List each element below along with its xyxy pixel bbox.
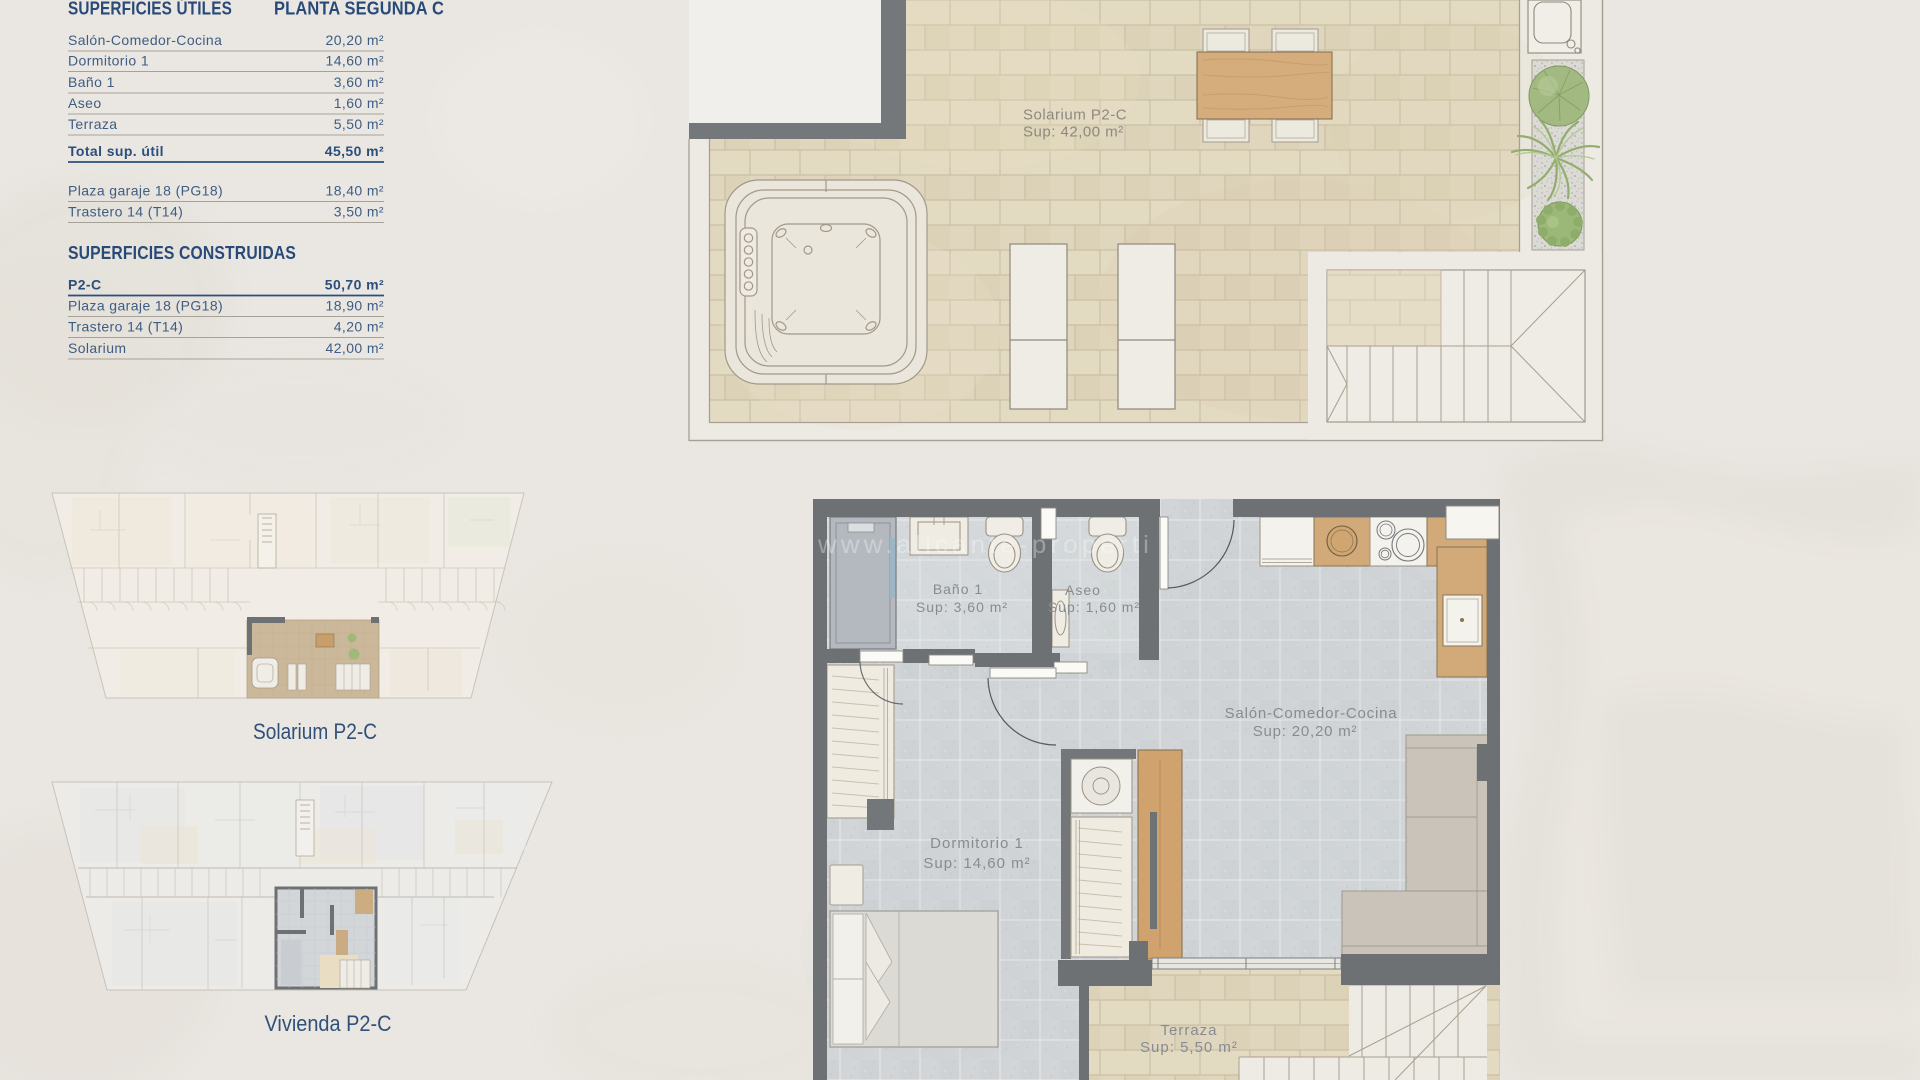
- svg-text:Plaza garaje 18 (PG18): Plaza garaje 18 (PG18): [68, 298, 223, 314]
- svg-text:Terraza: Terraza: [1160, 1022, 1217, 1039]
- svg-text:Baño 1: Baño 1: [933, 581, 983, 597]
- svg-text:1,60 m²: 1,60 m²: [334, 95, 384, 111]
- svg-text:Sup: 3,60 m²: Sup: 3,60 m²: [916, 599, 1008, 615]
- svg-text:20,20 m²: 20,20 m²: [326, 32, 384, 48]
- svg-text:www.alicante-properti: www.alicante-properti: [817, 531, 1153, 559]
- svg-text:3,50 m²: 3,50 m²: [334, 204, 384, 220]
- svg-text:P2-C: P2-C: [68, 277, 102, 293]
- svg-text:18,40 m²: 18,40 m²: [326, 183, 384, 199]
- svg-text:Trastero 14 (T14): Trastero 14 (T14): [68, 319, 183, 335]
- svg-text:Solarium: Solarium: [68, 340, 126, 356]
- svg-text:14,60 m²: 14,60 m²: [326, 53, 384, 69]
- svg-text:Total sup. útil: Total sup. útil: [68, 143, 164, 159]
- svg-text:Terraza: Terraza: [68, 116, 117, 132]
- svg-text:Sup: 20,20 m²: Sup: 20,20 m²: [1253, 723, 1358, 740]
- svg-text:Aseo: Aseo: [1065, 582, 1101, 598]
- svg-text:4,20 m²: 4,20 m²: [334, 319, 384, 335]
- svg-text:18,90 m²: 18,90 m²: [326, 298, 384, 314]
- svg-text:Dormitorio 1: Dormitorio 1: [68, 53, 149, 69]
- svg-text:PLANTA SEGUNDA C: PLANTA SEGUNDA C: [274, 0, 444, 19]
- svg-text:3,60 m²: 3,60 m²: [334, 74, 384, 90]
- svg-text:Sup: 42,00 m²: Sup: 42,00 m²: [1023, 124, 1124, 141]
- svg-text:SUPERFICIES ÚTILES: SUPERFICIES ÚTILES: [68, 0, 232, 19]
- svg-text:50,70 m²: 50,70 m²: [325, 277, 384, 293]
- svg-text:Vivienda P2-C: Vivienda P2-C: [265, 1011, 392, 1036]
- svg-text:Plaza garaje 18 (PG18): Plaza garaje 18 (PG18): [68, 183, 223, 199]
- svg-text:42,00 m²: 42,00 m²: [326, 340, 384, 356]
- svg-text:5,50 m²: 5,50 m²: [334, 116, 384, 132]
- svg-text:Dormitorio 1: Dormitorio 1: [930, 835, 1024, 852]
- svg-text:Solarium P2-C: Solarium P2-C: [1023, 107, 1127, 124]
- svg-text:Aseo: Aseo: [68, 95, 102, 111]
- svg-text:Baño 1: Baño 1: [68, 74, 115, 90]
- svg-text:Trastero 14 (T14): Trastero 14 (T14): [68, 204, 183, 220]
- svg-text:Sup: 14,60 m²: Sup: 14,60 m²: [923, 855, 1030, 872]
- svg-text:Sup: 1,60 m²: Sup: 1,60 m²: [1048, 599, 1140, 615]
- svg-text:Sup: 5,50 m²: Sup: 5,50 m²: [1140, 1039, 1238, 1056]
- svg-text:Solarium P2-C: Solarium P2-C: [253, 719, 377, 744]
- svg-text:Salón-Comedor-Cocina: Salón-Comedor-Cocina: [1225, 705, 1398, 722]
- svg-text:SUPERFICIES CONSTRUIDAS: SUPERFICIES CONSTRUIDAS: [68, 242, 296, 263]
- svg-text:45,50 m²: 45,50 m²: [325, 143, 384, 159]
- svg-text:Salón-Comedor-Cocina: Salón-Comedor-Cocina: [68, 32, 222, 48]
